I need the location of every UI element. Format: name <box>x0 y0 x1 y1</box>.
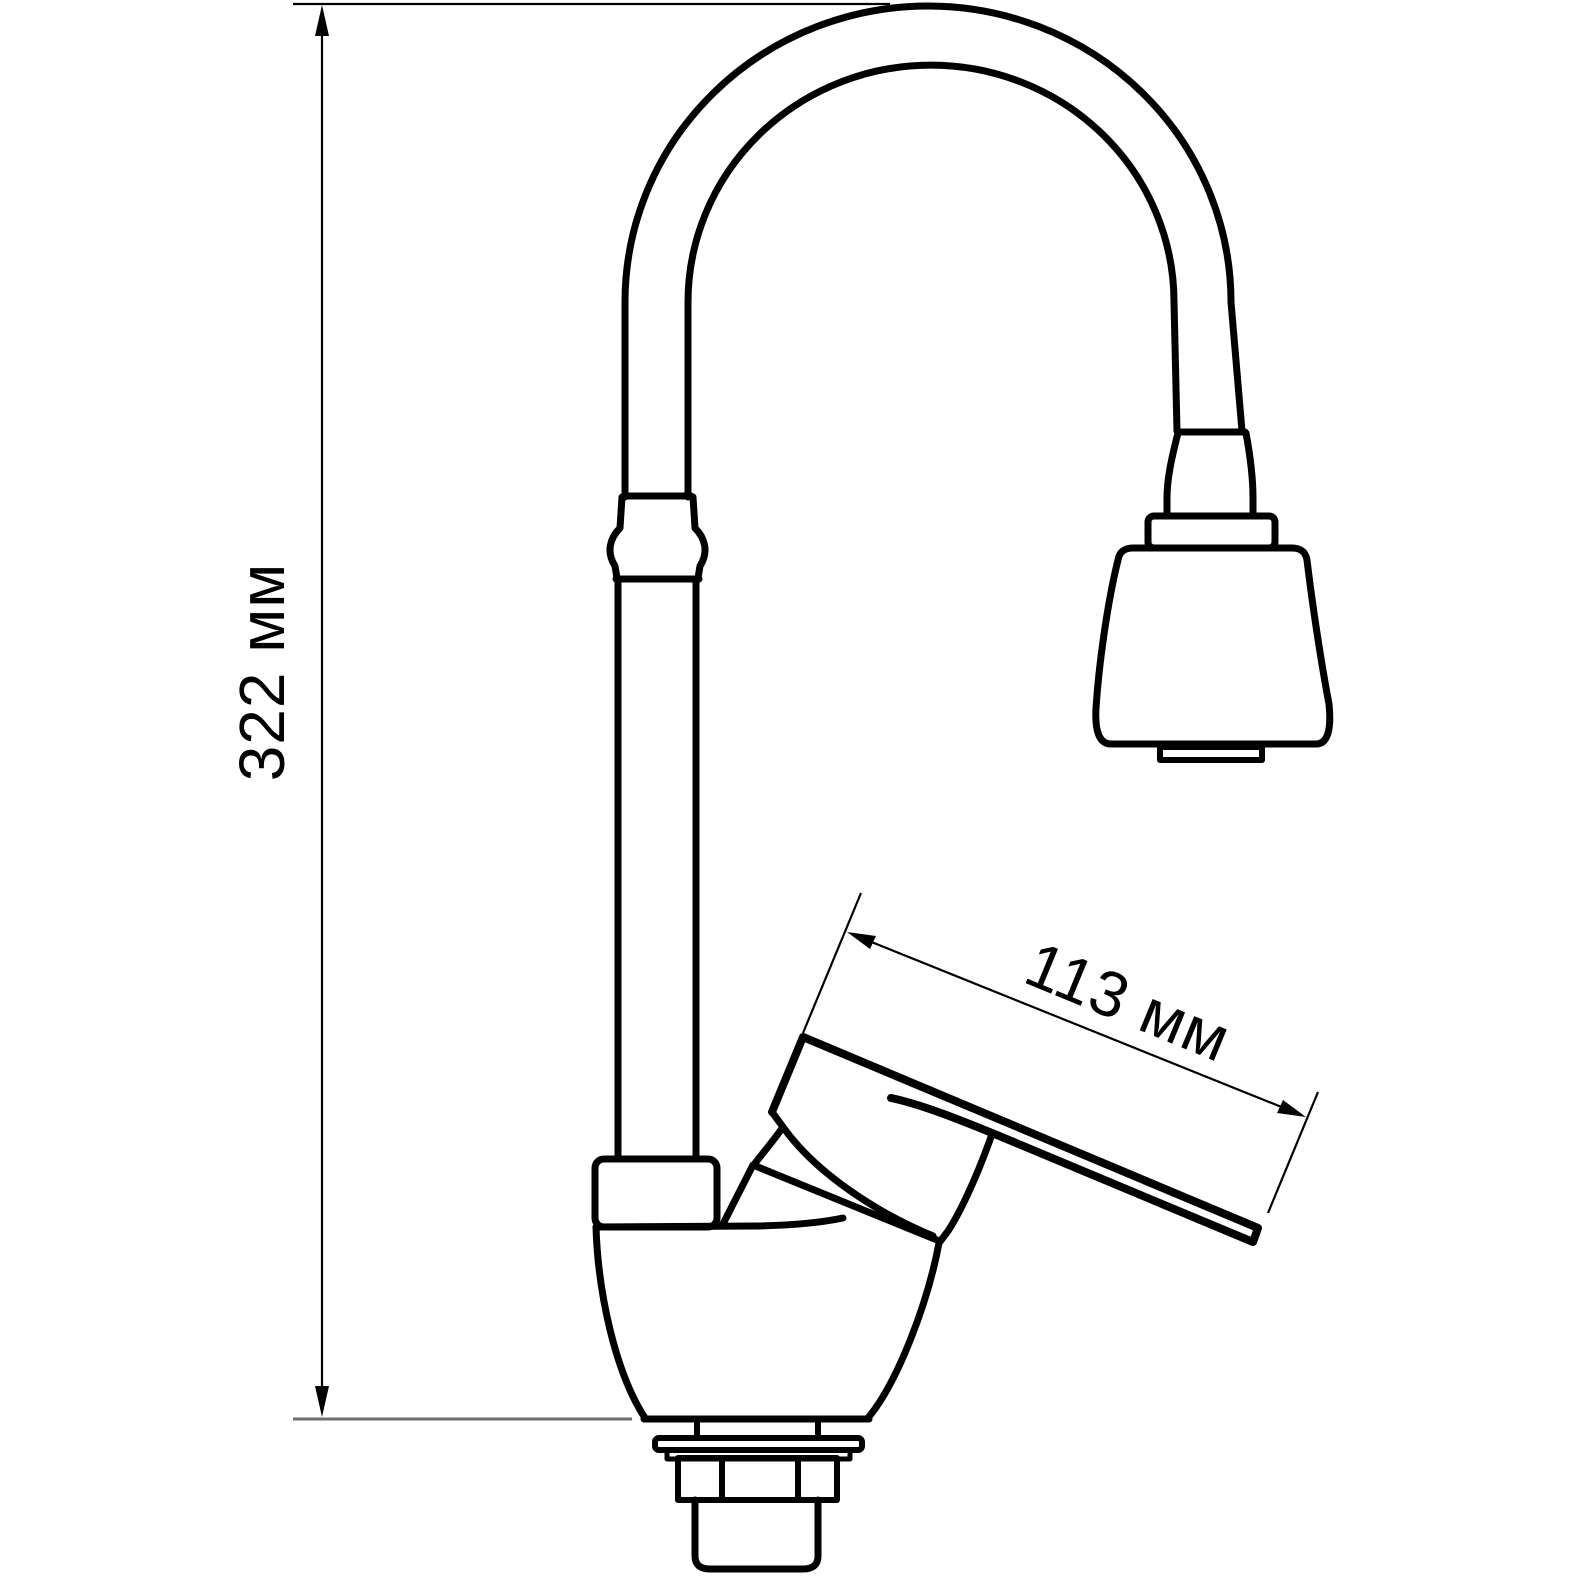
height-dimension-label: 322 мм <box>226 563 298 782</box>
arrow-height-top <box>315 5 329 36</box>
faucet-technical-drawing: 322 мм 113 мм <box>0 0 1577 1576</box>
gooseneck-spout <box>625 6 1242 497</box>
threaded-shank <box>695 1500 818 1569</box>
arrow-reach-right <box>1277 1100 1306 1117</box>
arrow-reach-left <box>847 932 876 949</box>
reach-dimension-label: 113 мм <box>1016 928 1241 1076</box>
riser-pipe <box>618 580 696 1159</box>
hose-connector <box>1167 432 1253 516</box>
spray-head-collar <box>1148 516 1275 548</box>
extension-line-lever-left <box>803 893 861 1033</box>
riser-collar <box>595 1159 717 1227</box>
locknut <box>678 1458 837 1500</box>
locknut-facets <box>722 1458 798 1500</box>
dimension-lines <box>293 4 1318 1390</box>
spray-head <box>1096 548 1330 744</box>
drawing-sheet: 322 мм 113 мм <box>0 0 1577 1576</box>
arrow-height-bottom <box>315 1386 329 1417</box>
dimension-labels: 322 мм 113 мм <box>226 563 1241 1076</box>
faucet-outline <box>595 6 1330 1569</box>
riser-sleeve-joint <box>610 496 705 579</box>
aerator-nozzle <box>1160 747 1262 760</box>
faucet-body <box>596 1227 939 1419</box>
